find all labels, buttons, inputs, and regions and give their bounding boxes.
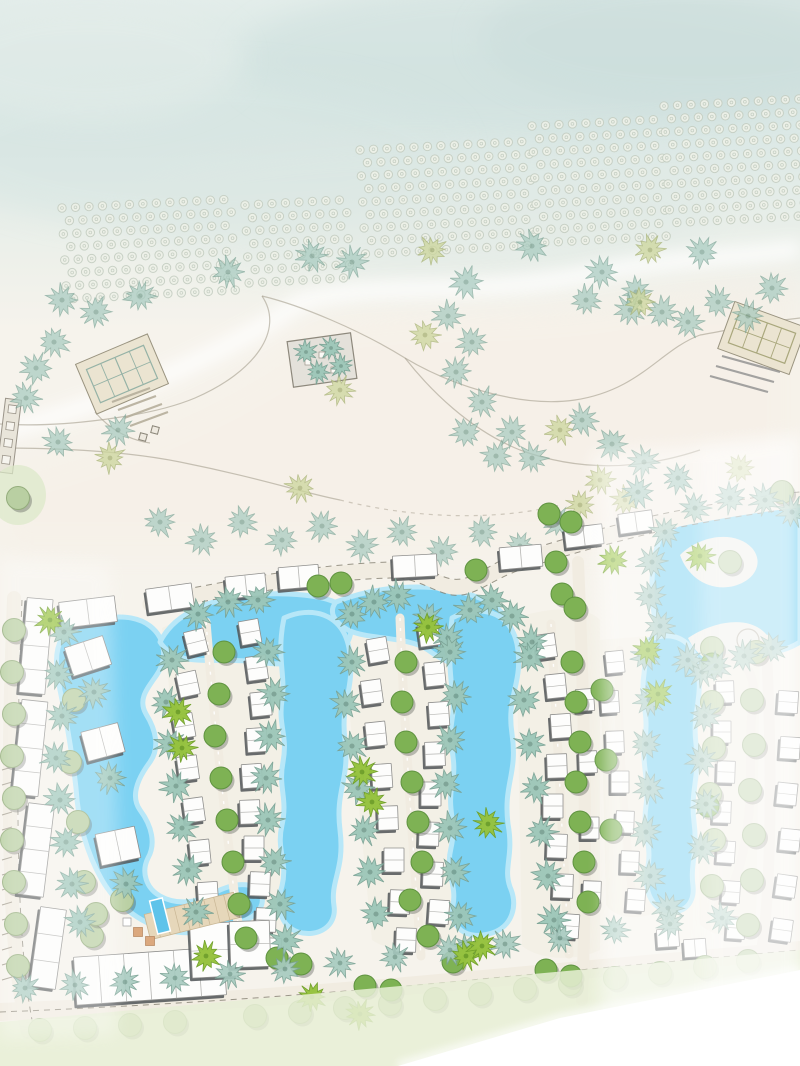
grove-tree bbox=[686, 218, 694, 226]
grove-tree bbox=[168, 250, 176, 258]
grove-tree bbox=[533, 226, 541, 234]
grove-tree bbox=[486, 178, 494, 186]
grove-tree bbox=[383, 144, 391, 152]
grove-tree bbox=[631, 155, 639, 163]
grove-tree bbox=[541, 121, 549, 129]
grove-tree bbox=[790, 134, 798, 142]
grove-tree bbox=[775, 109, 783, 117]
grove-tree bbox=[135, 265, 143, 273]
grove-tree bbox=[312, 275, 320, 283]
grove-tree bbox=[154, 225, 162, 233]
grove-tree bbox=[742, 124, 750, 132]
grove-tree bbox=[167, 224, 175, 232]
grove-tree bbox=[677, 179, 685, 187]
pool-cabana bbox=[134, 928, 143, 937]
grove-tree bbox=[611, 169, 619, 177]
grove-tree bbox=[591, 158, 599, 166]
grove-tree bbox=[764, 161, 772, 169]
grove-tree bbox=[630, 129, 638, 137]
grove-tree bbox=[498, 151, 506, 159]
grove-tree bbox=[710, 164, 718, 172]
grove-tree bbox=[583, 145, 591, 153]
grove-tree bbox=[535, 134, 543, 142]
grove-tree bbox=[74, 255, 82, 263]
grove-tree bbox=[704, 178, 712, 186]
grove-tree bbox=[197, 275, 205, 283]
grove-tree bbox=[794, 212, 800, 220]
grove-tree bbox=[754, 97, 762, 105]
grove-tree bbox=[152, 199, 160, 207]
grove-tree bbox=[496, 243, 504, 251]
grove-tree bbox=[559, 198, 567, 206]
grove-tree bbox=[220, 195, 228, 203]
grove-tree bbox=[278, 264, 286, 272]
grove-tree bbox=[441, 219, 449, 227]
grove-tree bbox=[731, 176, 739, 184]
grove-tree bbox=[502, 229, 510, 237]
grove-tree bbox=[781, 213, 789, 221]
grove-tree bbox=[785, 173, 793, 181]
grove-tree bbox=[408, 234, 416, 242]
grove-tree bbox=[572, 198, 580, 206]
grove-tree bbox=[471, 153, 479, 161]
grove-tree bbox=[474, 205, 482, 213]
grove-tree bbox=[518, 137, 526, 145]
grove-tree bbox=[576, 132, 584, 140]
grove-tree bbox=[766, 187, 774, 195]
grove-tree bbox=[381, 236, 389, 244]
grove-tree bbox=[456, 245, 464, 253]
grove-tree bbox=[270, 251, 278, 259]
grove-tree bbox=[68, 268, 76, 276]
grove-tree bbox=[628, 221, 636, 229]
grove-tree bbox=[95, 267, 103, 275]
villa bbox=[421, 661, 446, 690]
grove-tree bbox=[387, 222, 395, 230]
grove-tree bbox=[514, 203, 522, 211]
bench bbox=[151, 426, 160, 435]
grove-tree bbox=[248, 213, 256, 221]
grove-tree bbox=[302, 211, 310, 219]
grove-tree bbox=[565, 185, 573, 193]
grove-tree bbox=[406, 208, 414, 216]
grove-tree bbox=[156, 277, 164, 285]
grove-tree bbox=[779, 187, 787, 195]
grove-tree bbox=[385, 196, 393, 204]
grove-tree bbox=[556, 146, 564, 154]
grove-tree bbox=[700, 217, 708, 225]
grove-tree bbox=[487, 204, 495, 212]
grove-tree bbox=[665, 206, 673, 214]
grove-tree bbox=[723, 138, 731, 146]
grove-tree bbox=[458, 153, 466, 161]
grove-tree bbox=[373, 223, 381, 231]
grove-tree bbox=[549, 134, 557, 142]
grove-tree bbox=[519, 163, 527, 171]
grove-tree bbox=[160, 211, 168, 219]
grove-tree bbox=[791, 160, 799, 168]
grove-tree bbox=[687, 100, 695, 108]
grove-tree bbox=[194, 223, 202, 231]
grove-tree bbox=[180, 223, 188, 231]
grove-tree bbox=[495, 217, 503, 225]
grove-tree bbox=[61, 256, 69, 264]
grove-tree bbox=[359, 198, 367, 206]
grove-tree bbox=[94, 241, 102, 249]
grove-tree bbox=[769, 122, 777, 130]
grove-tree bbox=[741, 98, 749, 106]
grove-tree bbox=[390, 157, 398, 165]
grove-tree bbox=[179, 197, 187, 205]
grove-tree bbox=[730, 150, 738, 158]
grove-tree bbox=[244, 253, 252, 261]
grove-tree bbox=[736, 137, 744, 145]
grove-tree bbox=[501, 203, 509, 211]
grove-tree bbox=[452, 167, 460, 175]
grove-tree bbox=[114, 253, 122, 261]
grove-tree bbox=[284, 251, 292, 259]
grove-tree bbox=[317, 236, 325, 244]
grove-tree bbox=[653, 193, 661, 201]
grove-tree bbox=[767, 213, 775, 221]
grove-tree bbox=[480, 191, 488, 199]
grove-tree bbox=[201, 235, 209, 243]
grove-tree bbox=[636, 116, 644, 124]
grove-tree bbox=[112, 201, 120, 209]
grove-tree bbox=[555, 120, 563, 128]
grove-tree bbox=[222, 247, 230, 255]
grove-tree bbox=[308, 197, 316, 205]
grove-tree bbox=[127, 226, 135, 234]
grove-tree bbox=[372, 197, 380, 205]
grove-tree bbox=[754, 214, 762, 222]
grove-tree bbox=[98, 202, 106, 210]
grove-tree bbox=[538, 186, 546, 194]
grove-tree bbox=[597, 144, 605, 152]
grove-tree bbox=[551, 186, 559, 194]
grove-tree bbox=[760, 201, 768, 209]
grove-tree bbox=[481, 217, 489, 225]
grove-tree bbox=[493, 191, 501, 199]
grove-tree bbox=[562, 133, 570, 141]
grove-tree bbox=[245, 279, 253, 287]
grove-tree bbox=[107, 240, 115, 248]
grove-tree bbox=[427, 220, 435, 228]
grove-tree bbox=[465, 166, 473, 174]
grove-tree bbox=[173, 211, 181, 219]
grove-tree bbox=[121, 240, 129, 248]
grove-tree bbox=[675, 127, 683, 135]
grove-tree bbox=[571, 172, 579, 180]
grove-tree bbox=[453, 193, 461, 201]
grove-tree bbox=[758, 175, 766, 183]
grove-tree bbox=[721, 112, 729, 120]
grove-tree bbox=[733, 202, 741, 210]
grove-tree bbox=[466, 192, 474, 200]
grove-tree bbox=[281, 199, 289, 207]
grove-tree bbox=[209, 248, 217, 256]
grove-tree bbox=[647, 207, 655, 215]
grove-tree bbox=[454, 219, 462, 227]
grove-tree bbox=[369, 145, 377, 153]
grove-tree bbox=[116, 279, 124, 287]
grove-tree bbox=[492, 165, 500, 173]
grove-tree bbox=[371, 171, 379, 179]
grove-tree bbox=[182, 249, 190, 257]
grove-tree bbox=[367, 236, 375, 244]
grove-tree bbox=[715, 125, 723, 133]
grove-tree bbox=[688, 126, 696, 134]
grove-tree bbox=[183, 275, 191, 283]
grove-tree bbox=[787, 199, 795, 207]
grove-tree bbox=[119, 214, 127, 222]
grove-tree bbox=[323, 223, 331, 231]
grove-tree bbox=[547, 225, 555, 233]
grove-tree bbox=[439, 193, 447, 201]
villa bbox=[542, 673, 567, 702]
grove-tree bbox=[745, 175, 753, 183]
grove-tree bbox=[491, 139, 499, 147]
grove-tree bbox=[204, 287, 212, 295]
grove-tree bbox=[329, 209, 337, 217]
grove-tree bbox=[663, 154, 671, 162]
grove-tree bbox=[396, 144, 404, 152]
grove-tree bbox=[343, 208, 351, 216]
grove-tree bbox=[464, 140, 472, 148]
grove-tree bbox=[393, 209, 401, 217]
grove-tree bbox=[778, 161, 786, 169]
grove-tree bbox=[646, 181, 654, 189]
grove-tree bbox=[177, 289, 185, 297]
grove-tree bbox=[200, 209, 208, 217]
grove-tree bbox=[250, 239, 258, 247]
grove-tree bbox=[227, 208, 235, 216]
grove-tree bbox=[620, 208, 628, 216]
grove-tree bbox=[405, 182, 413, 190]
grove-tree bbox=[448, 232, 456, 240]
grove-tree bbox=[322, 197, 330, 205]
grove-tree bbox=[776, 135, 784, 143]
grove-tree bbox=[468, 218, 476, 226]
grove-tree bbox=[79, 216, 87, 224]
grove-tree bbox=[635, 233, 643, 241]
grove-tree bbox=[388, 248, 396, 256]
grove-tree bbox=[626, 195, 634, 203]
grove-tree bbox=[610, 144, 618, 152]
grove-tree bbox=[713, 216, 721, 224]
grove-tree bbox=[438, 168, 446, 176]
grove-tree bbox=[513, 177, 521, 185]
grove-tree bbox=[727, 98, 735, 106]
grove-tree bbox=[505, 164, 513, 172]
grove-tree bbox=[412, 195, 420, 203]
grove-tree bbox=[477, 139, 485, 147]
villa bbox=[375, 806, 398, 834]
grove-tree bbox=[560, 224, 568, 232]
grove-tree bbox=[537, 160, 545, 168]
grove-tree bbox=[595, 235, 603, 243]
grove-tree bbox=[366, 210, 374, 218]
grove-tree bbox=[195, 249, 203, 257]
grove-tree bbox=[147, 238, 155, 246]
grove-tree bbox=[756, 123, 764, 131]
villa bbox=[422, 742, 445, 770]
grove-tree bbox=[419, 182, 427, 190]
grove-tree bbox=[578, 184, 586, 192]
grove-tree bbox=[543, 147, 551, 155]
grove-tree bbox=[426, 194, 434, 202]
grove-tree bbox=[740, 215, 748, 223]
grove-tree bbox=[378, 184, 386, 192]
grove-tree bbox=[295, 198, 303, 206]
grove-tree bbox=[650, 141, 658, 149]
grove-tree bbox=[290, 237, 298, 245]
grove-tree bbox=[550, 160, 558, 168]
grove-tree bbox=[258, 278, 266, 286]
grove-tree bbox=[643, 129, 651, 137]
grove-tree bbox=[644, 155, 652, 163]
grove-tree bbox=[447, 206, 455, 214]
grove-tree bbox=[242, 227, 250, 235]
grove-tree bbox=[553, 212, 561, 220]
grove-tree bbox=[140, 226, 148, 234]
grove-tree bbox=[641, 220, 649, 228]
grove-tree bbox=[71, 203, 79, 211]
grove-tree bbox=[357, 172, 365, 180]
grove-tree bbox=[241, 201, 249, 209]
grove-tree bbox=[735, 111, 743, 119]
grove-tree bbox=[632, 181, 640, 189]
grove-tree bbox=[712, 190, 720, 198]
grove-tree bbox=[529, 148, 537, 156]
grove-tree bbox=[489, 230, 497, 238]
grove-tree bbox=[757, 149, 765, 157]
grove-tree bbox=[360, 224, 368, 232]
grove-tree bbox=[752, 188, 760, 196]
grove-tree bbox=[394, 235, 402, 243]
grove-tree bbox=[598, 170, 606, 178]
grove-tree bbox=[622, 117, 630, 125]
grove-tree bbox=[528, 122, 536, 130]
grove-tree bbox=[652, 167, 660, 175]
grove-tree bbox=[706, 204, 714, 212]
grove-tree bbox=[231, 286, 239, 294]
grove-tree bbox=[522, 215, 530, 223]
grove-tree bbox=[283, 225, 291, 233]
grove-tree bbox=[539, 212, 547, 220]
townhouse-block bbox=[497, 544, 544, 573]
grove-tree bbox=[673, 218, 681, 226]
grove-tree bbox=[625, 169, 633, 177]
grove-tree bbox=[692, 204, 700, 212]
grove-tree bbox=[65, 216, 73, 224]
grove-tree bbox=[599, 196, 607, 204]
grove-tree bbox=[251, 265, 259, 273]
grove-tree bbox=[483, 243, 491, 251]
grove-tree bbox=[80, 242, 88, 250]
grove-tree bbox=[781, 95, 789, 103]
grove-tree bbox=[709, 138, 717, 146]
grove-tree bbox=[545, 199, 553, 207]
grove-tree bbox=[743, 149, 751, 157]
grove-tree bbox=[581, 236, 589, 244]
grove-tree bbox=[81, 268, 89, 276]
grove-tree bbox=[580, 210, 588, 218]
grove-tree bbox=[128, 252, 136, 260]
grove-tree bbox=[134, 239, 142, 247]
grove-tree bbox=[566, 211, 574, 219]
grove-tree bbox=[431, 155, 439, 163]
grove-tree bbox=[614, 221, 622, 229]
grove-tree bbox=[582, 119, 590, 127]
grove-tree bbox=[568, 120, 576, 128]
grove-tree bbox=[601, 222, 609, 230]
grove-tree bbox=[296, 224, 304, 232]
grove-tree bbox=[595, 118, 603, 126]
grove-tree bbox=[768, 96, 776, 104]
grove-tree bbox=[670, 166, 678, 174]
grove-tree bbox=[335, 196, 343, 204]
grove-tree bbox=[729, 124, 737, 132]
grove-tree bbox=[622, 234, 630, 242]
grove-tree bbox=[275, 212, 283, 220]
grove-tree bbox=[256, 226, 264, 234]
grove-tree bbox=[384, 170, 392, 178]
grove-tree bbox=[392, 183, 400, 191]
grove-tree bbox=[437, 142, 445, 150]
grove-tree bbox=[784, 147, 792, 155]
villa bbox=[426, 701, 450, 730]
villa bbox=[242, 836, 265, 863]
grove-tree bbox=[263, 239, 271, 247]
grove-tree bbox=[102, 280, 110, 288]
grove-tree bbox=[607, 209, 615, 217]
grove-tree bbox=[793, 186, 800, 194]
grove-tree bbox=[667, 114, 675, 122]
grove-tree bbox=[617, 156, 625, 164]
grove-tree bbox=[289, 211, 297, 219]
grove-tree bbox=[682, 140, 690, 148]
grove-tree bbox=[696, 139, 704, 147]
grove-tree bbox=[187, 210, 195, 218]
grove-tree bbox=[268, 199, 276, 207]
grove-tree bbox=[605, 183, 613, 191]
grove-tree bbox=[410, 143, 418, 151]
grove-tree bbox=[73, 229, 81, 237]
grove-tree bbox=[139, 200, 147, 208]
grove-tree bbox=[155, 251, 163, 259]
grove-tree bbox=[75, 281, 83, 289]
grove-tree bbox=[215, 235, 223, 243]
grove-tree bbox=[129, 278, 137, 286]
grove-tree bbox=[568, 237, 576, 245]
grove-tree bbox=[724, 164, 732, 172]
grove-tree bbox=[634, 207, 642, 215]
grove-tree bbox=[414, 221, 422, 229]
grove-tree bbox=[411, 169, 419, 177]
grove-tree bbox=[708, 112, 716, 120]
grove-tree bbox=[587, 223, 595, 231]
grove-tree bbox=[417, 156, 425, 164]
bench bbox=[139, 433, 148, 442]
grove-tree bbox=[544, 173, 552, 181]
grove-tree bbox=[586, 197, 594, 205]
grove-tree bbox=[789, 108, 797, 116]
grove-tree bbox=[478, 165, 486, 173]
grove-tree bbox=[669, 140, 677, 148]
grove-tree bbox=[170, 276, 178, 284]
grove-tree bbox=[508, 216, 516, 224]
